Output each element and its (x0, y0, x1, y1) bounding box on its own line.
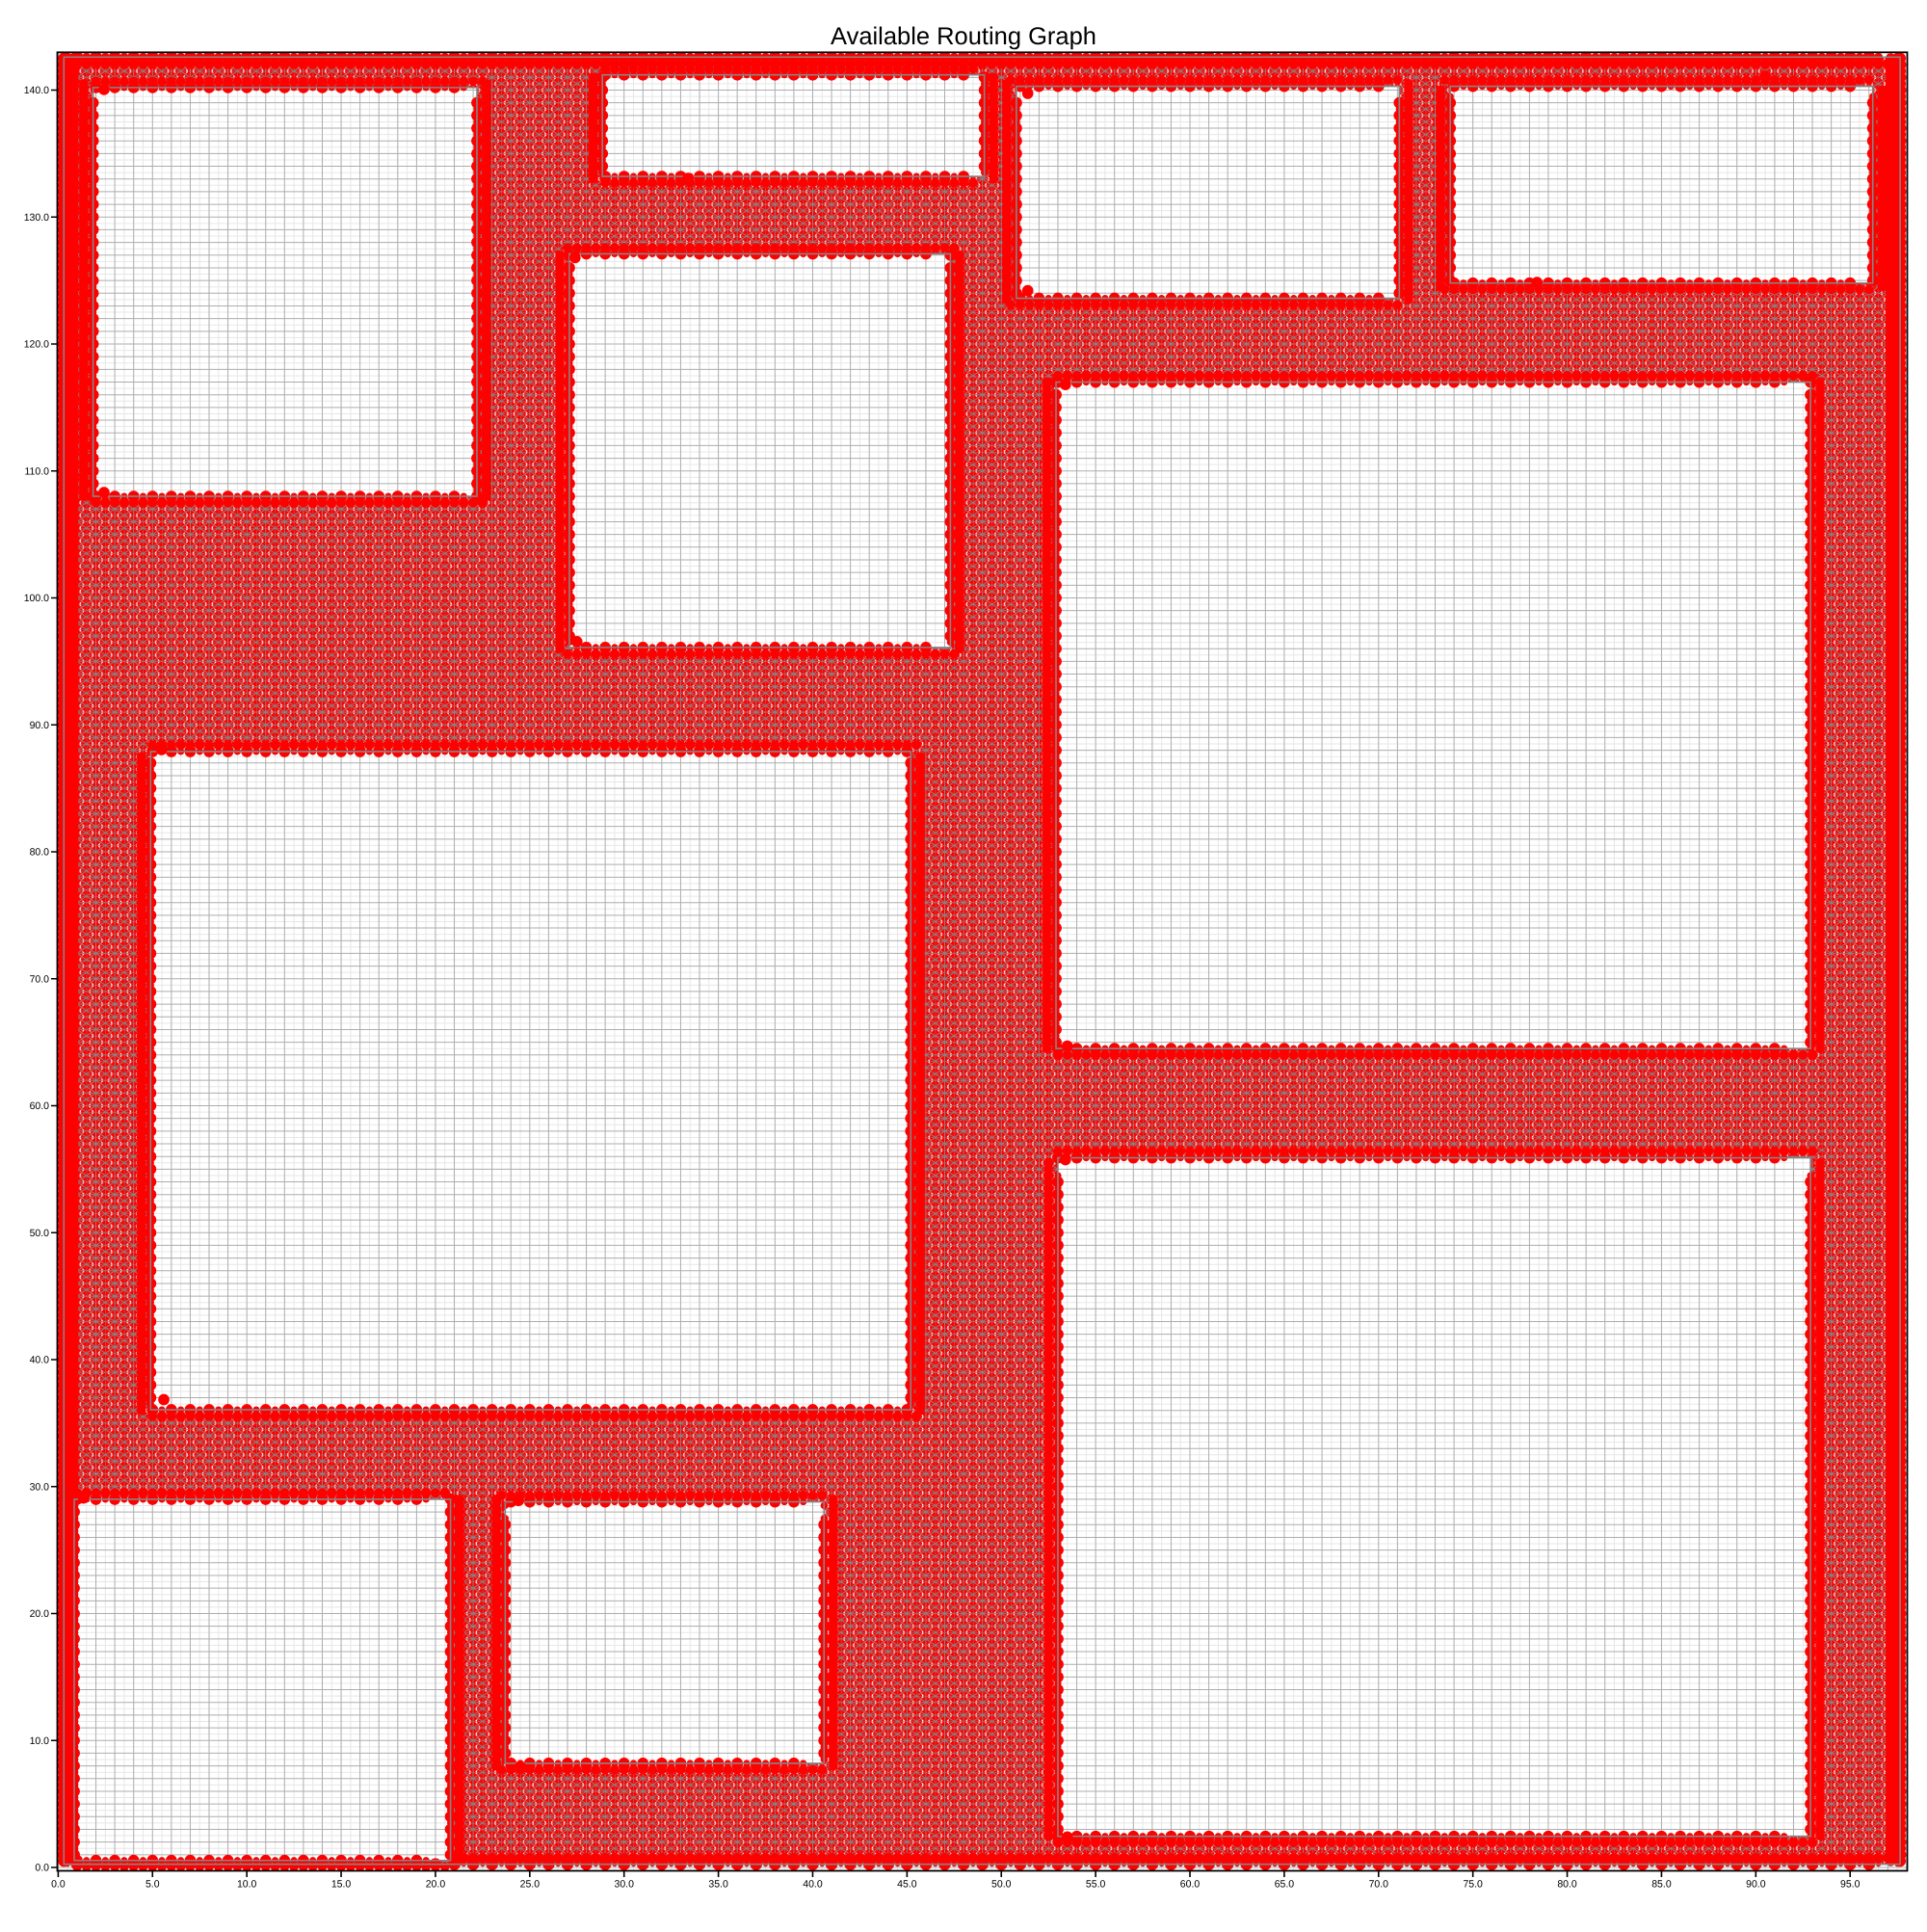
svg-text:100.0: 100.0 (24, 593, 49, 604)
svg-text:60.0: 60.0 (30, 1100, 50, 1112)
svg-text:80.0: 80.0 (1557, 1879, 1577, 1891)
svg-text:20.0: 20.0 (30, 1608, 50, 1620)
svg-text:55.0: 55.0 (1086, 1879, 1106, 1891)
svg-text:45.0: 45.0 (897, 1879, 917, 1891)
svg-text:140.0: 140.0 (24, 85, 49, 96)
svg-text:20.0: 20.0 (426, 1879, 446, 1891)
svg-text:95.0: 95.0 (1840, 1879, 1861, 1891)
svg-text:10.0: 10.0 (237, 1879, 257, 1891)
svg-text:30.0: 30.0 (614, 1879, 634, 1891)
svg-text:5.0: 5.0 (145, 1879, 160, 1891)
svg-text:90.0: 90.0 (30, 720, 50, 731)
svg-text:25.0: 25.0 (520, 1879, 541, 1891)
svg-text:40.0: 40.0 (30, 1355, 50, 1366)
svg-text:50.0: 50.0 (30, 1228, 50, 1239)
svg-text:30.0: 30.0 (30, 1481, 50, 1493)
svg-text:35.0: 35.0 (708, 1879, 728, 1891)
svg-text:80.0: 80.0 (30, 847, 50, 859)
svg-text:10.0: 10.0 (30, 1735, 50, 1747)
svg-text:Available Routing Graph: Available Routing Graph (831, 23, 1096, 50)
svg-text:15.0: 15.0 (331, 1879, 352, 1891)
svg-text:75.0: 75.0 (1463, 1879, 1483, 1891)
svg-text:90.0: 90.0 (1746, 1879, 1766, 1891)
svg-text:40.0: 40.0 (803, 1879, 823, 1891)
svg-text:70.0: 70.0 (30, 973, 50, 985)
svg-text:130.0: 130.0 (24, 212, 49, 224)
svg-text:50.0: 50.0 (991, 1879, 1012, 1891)
svg-text:0.0: 0.0 (35, 1863, 49, 1874)
svg-text:0.0: 0.0 (51, 1879, 66, 1891)
svg-text:110.0: 110.0 (25, 465, 50, 477)
svg-text:120.0: 120.0 (24, 339, 49, 351)
svg-text:65.0: 65.0 (1275, 1879, 1295, 1891)
svg-text:60.0: 60.0 (1180, 1879, 1201, 1891)
svg-text:85.0: 85.0 (1651, 1879, 1672, 1891)
svg-text:70.0: 70.0 (1369, 1879, 1389, 1891)
